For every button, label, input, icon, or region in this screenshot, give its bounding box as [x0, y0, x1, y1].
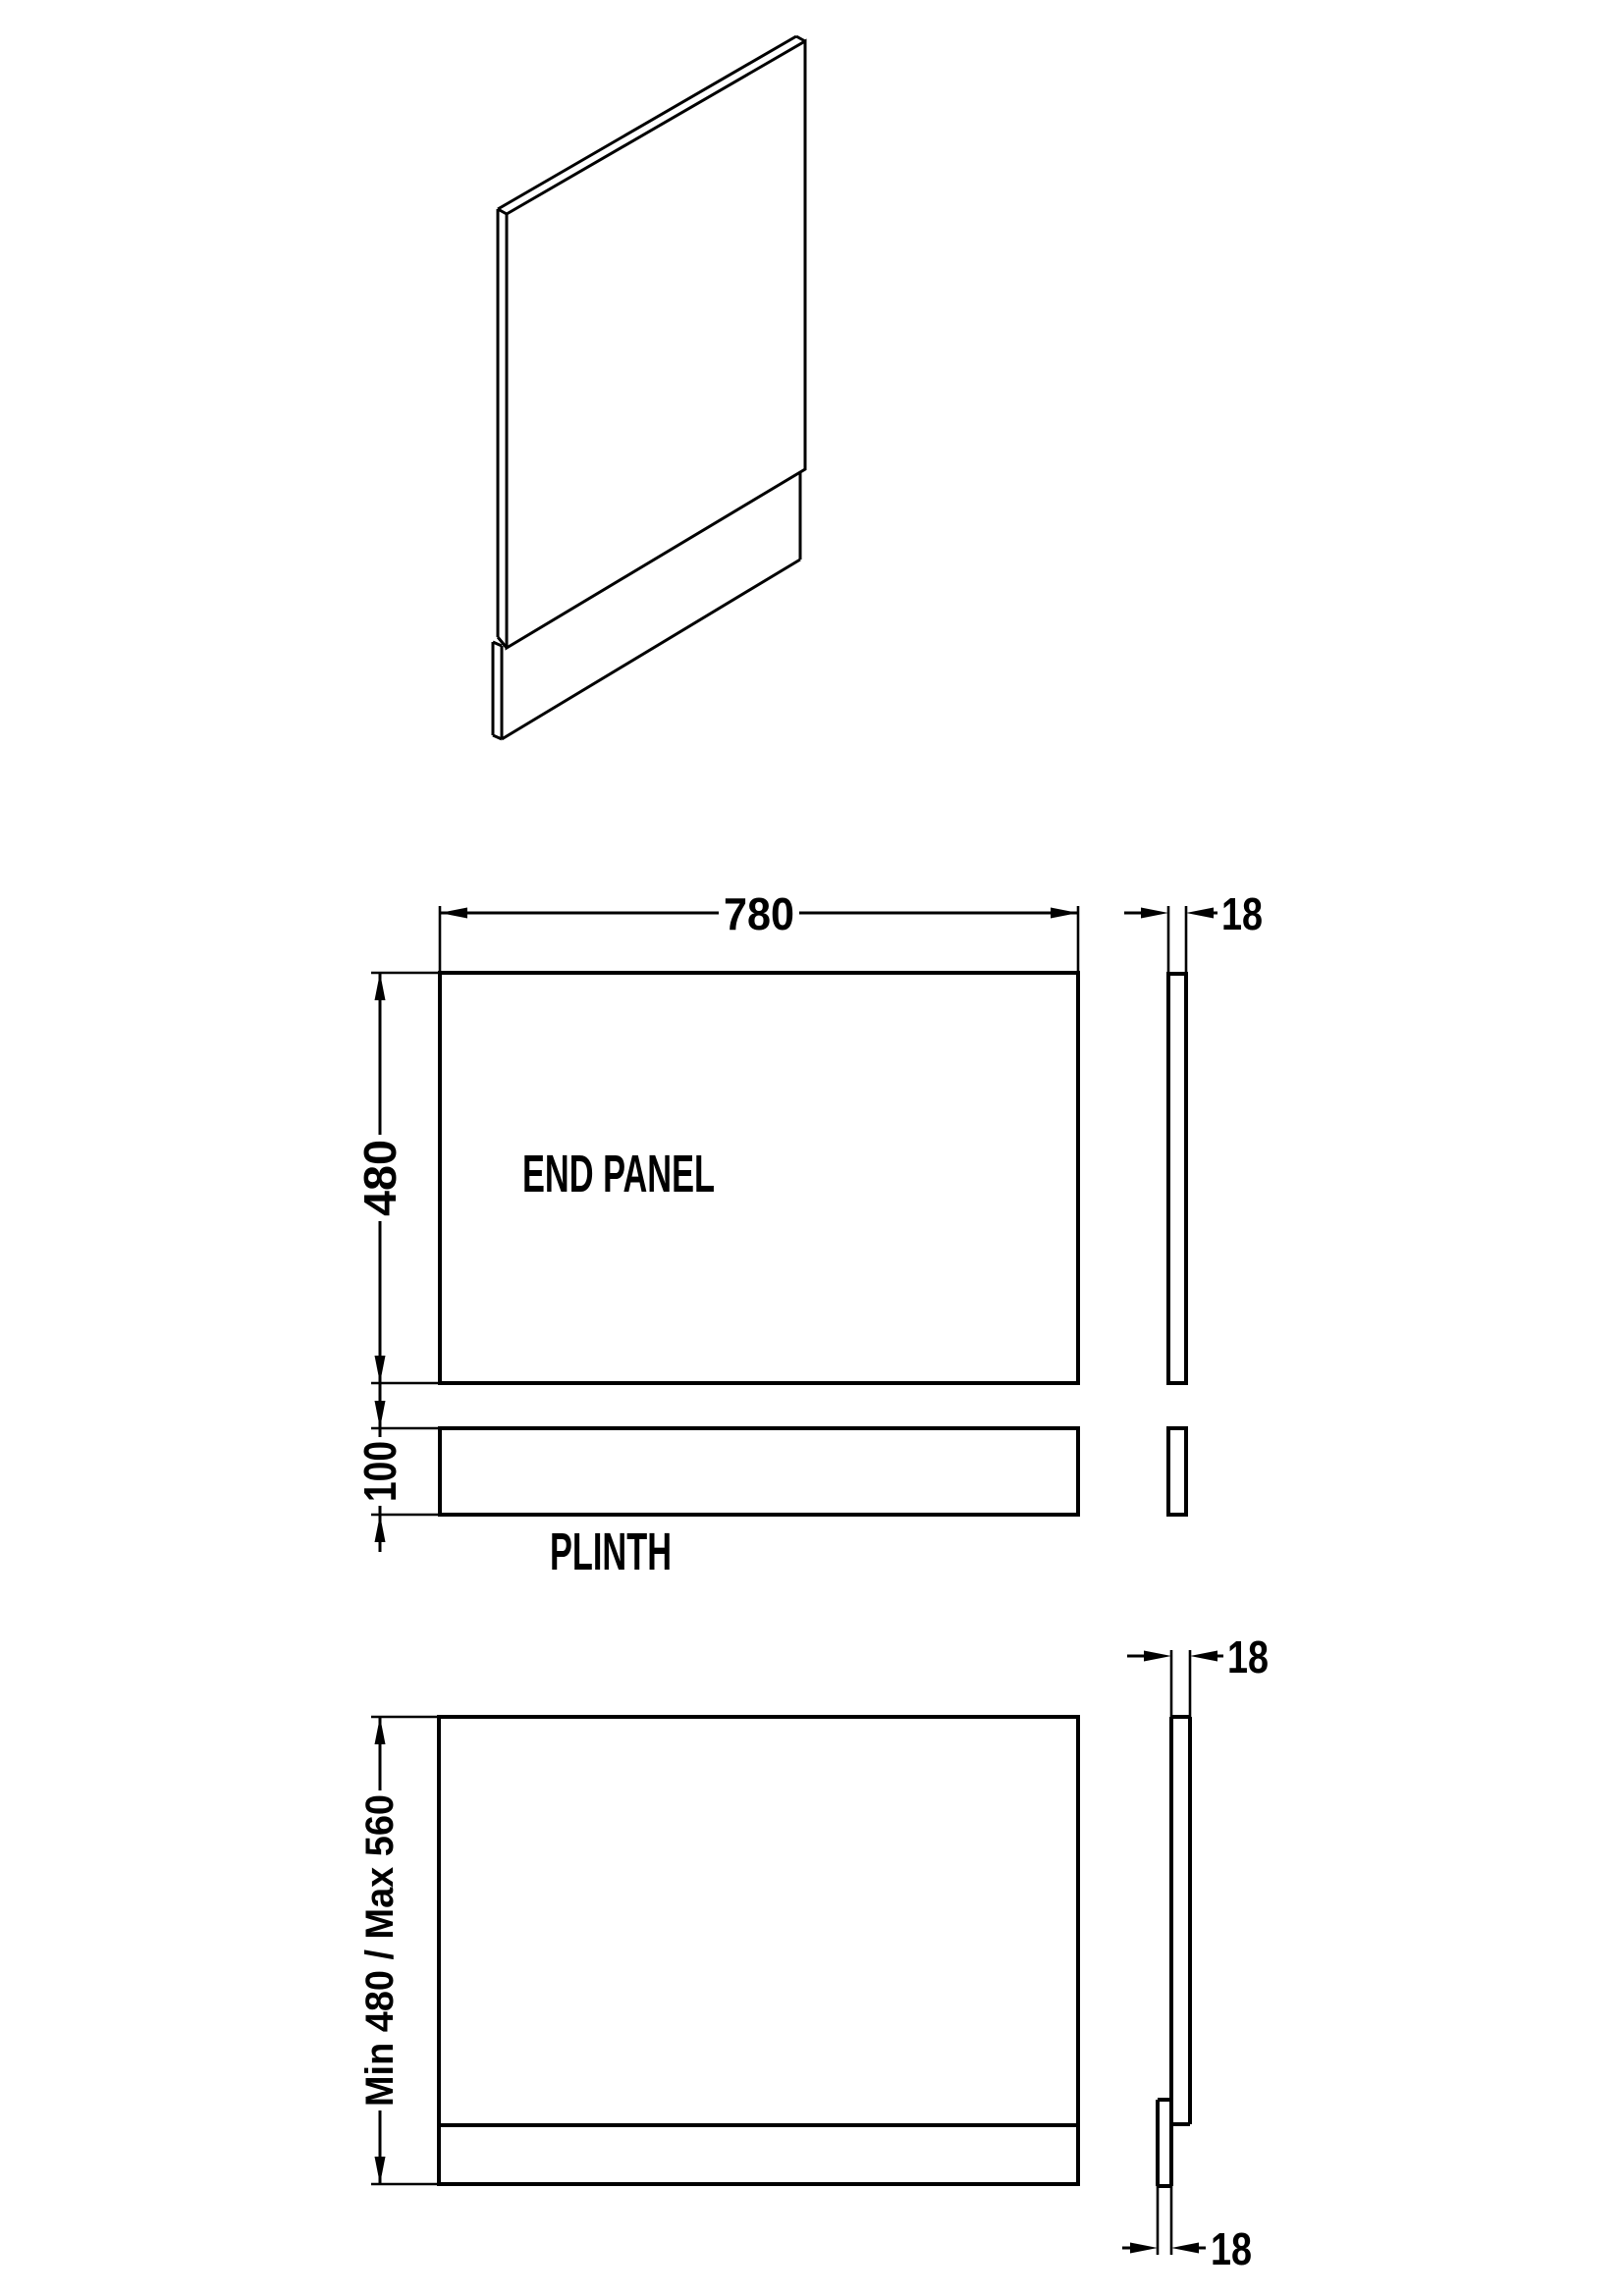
dim-100-arrow-top	[375, 1401, 386, 1428]
dim-100-arrow-bottom	[375, 1515, 386, 1542]
end-panel-front-view: END PANEL	[440, 973, 1078, 1383]
end-panel-side-outline	[1168, 974, 1186, 1383]
dim-18t-value: 18	[1227, 1631, 1269, 1682]
dim-18t-extension-lines	[1171, 1650, 1190, 1717]
dim-minmax-value: Min 480 / Max 560	[358, 1794, 402, 2107]
dim-480-arrow-top	[375, 973, 386, 1000]
assembled-outline	[439, 1717, 1078, 2184]
dim-18b-arrow-right	[1171, 2243, 1199, 2254]
dim-thickness-18-middle: 18	[1124, 888, 1263, 974]
dim-18b-value: 18	[1211, 2223, 1252, 2274]
end-panel-side-view	[1168, 974, 1186, 1515]
dim-18-arrow-right	[1186, 908, 1214, 919]
plinth-front-view: PLINTH	[440, 1428, 1078, 1581]
dim-plinth-100: 100	[354, 1401, 440, 1542]
dim-18-extension-lines	[1168, 906, 1186, 974]
dim-780-value: 780	[724, 888, 794, 939]
bath-end-panel-drawing: END PANEL 780 480 18 PLINTH 100	[0, 0, 1623, 2296]
dim-minmax-arrow-top	[375, 1717, 386, 1744]
dim-18b-extension-lines	[1158, 2186, 1171, 2255]
dim-18t-arrow-right	[1190, 1651, 1217, 1662]
technical-drawing-page: END PANEL 780 480 18 PLINTH 100	[0, 0, 1623, 2296]
dim-100-value: 100	[354, 1441, 406, 1502]
dim-thickness-18-bottom: 18	[1122, 2186, 1252, 2274]
assembled-front-view	[439, 1717, 1078, 2184]
dim-minmax-height: Min 480 / Max 560	[358, 1717, 439, 2184]
isometric-view	[493, 36, 805, 739]
end-panel-label: END PANEL	[522, 1145, 715, 1203]
dim-780-arrow-right	[1051, 908, 1078, 919]
dim-18-value: 18	[1221, 888, 1263, 939]
dim-18-arrow-left	[1141, 908, 1168, 919]
assembled-side-view	[1158, 1717, 1190, 2186]
dim-thickness-18-top: 18	[1127, 1631, 1269, 1717]
dim-width-780: 780	[440, 888, 1078, 973]
assembled-side-panel	[1171, 1717, 1190, 2186]
iso-plinth-face	[502, 473, 800, 739]
dim-minmax-arrow-bottom	[375, 2157, 386, 2184]
plinth-label: PLINTH	[550, 1522, 672, 1581]
dim-18t-arrow-left	[1144, 1651, 1171, 1662]
dim-480-value: 480	[354, 1140, 406, 1216]
plinth-side-outline	[1168, 1428, 1186, 1515]
iso-panel-top-edge	[498, 36, 805, 209]
dim-18b-arrow-left	[1130, 2243, 1158, 2254]
iso-panel-face	[507, 41, 805, 648]
iso-plinth-left-edge	[493, 642, 502, 739]
assembled-side-plinth	[1158, 2100, 1171, 2186]
dim-780-arrow-left	[440, 908, 467, 919]
plinth-outline	[440, 1428, 1078, 1515]
dim-480-arrow-bottom	[375, 1356, 386, 1383]
